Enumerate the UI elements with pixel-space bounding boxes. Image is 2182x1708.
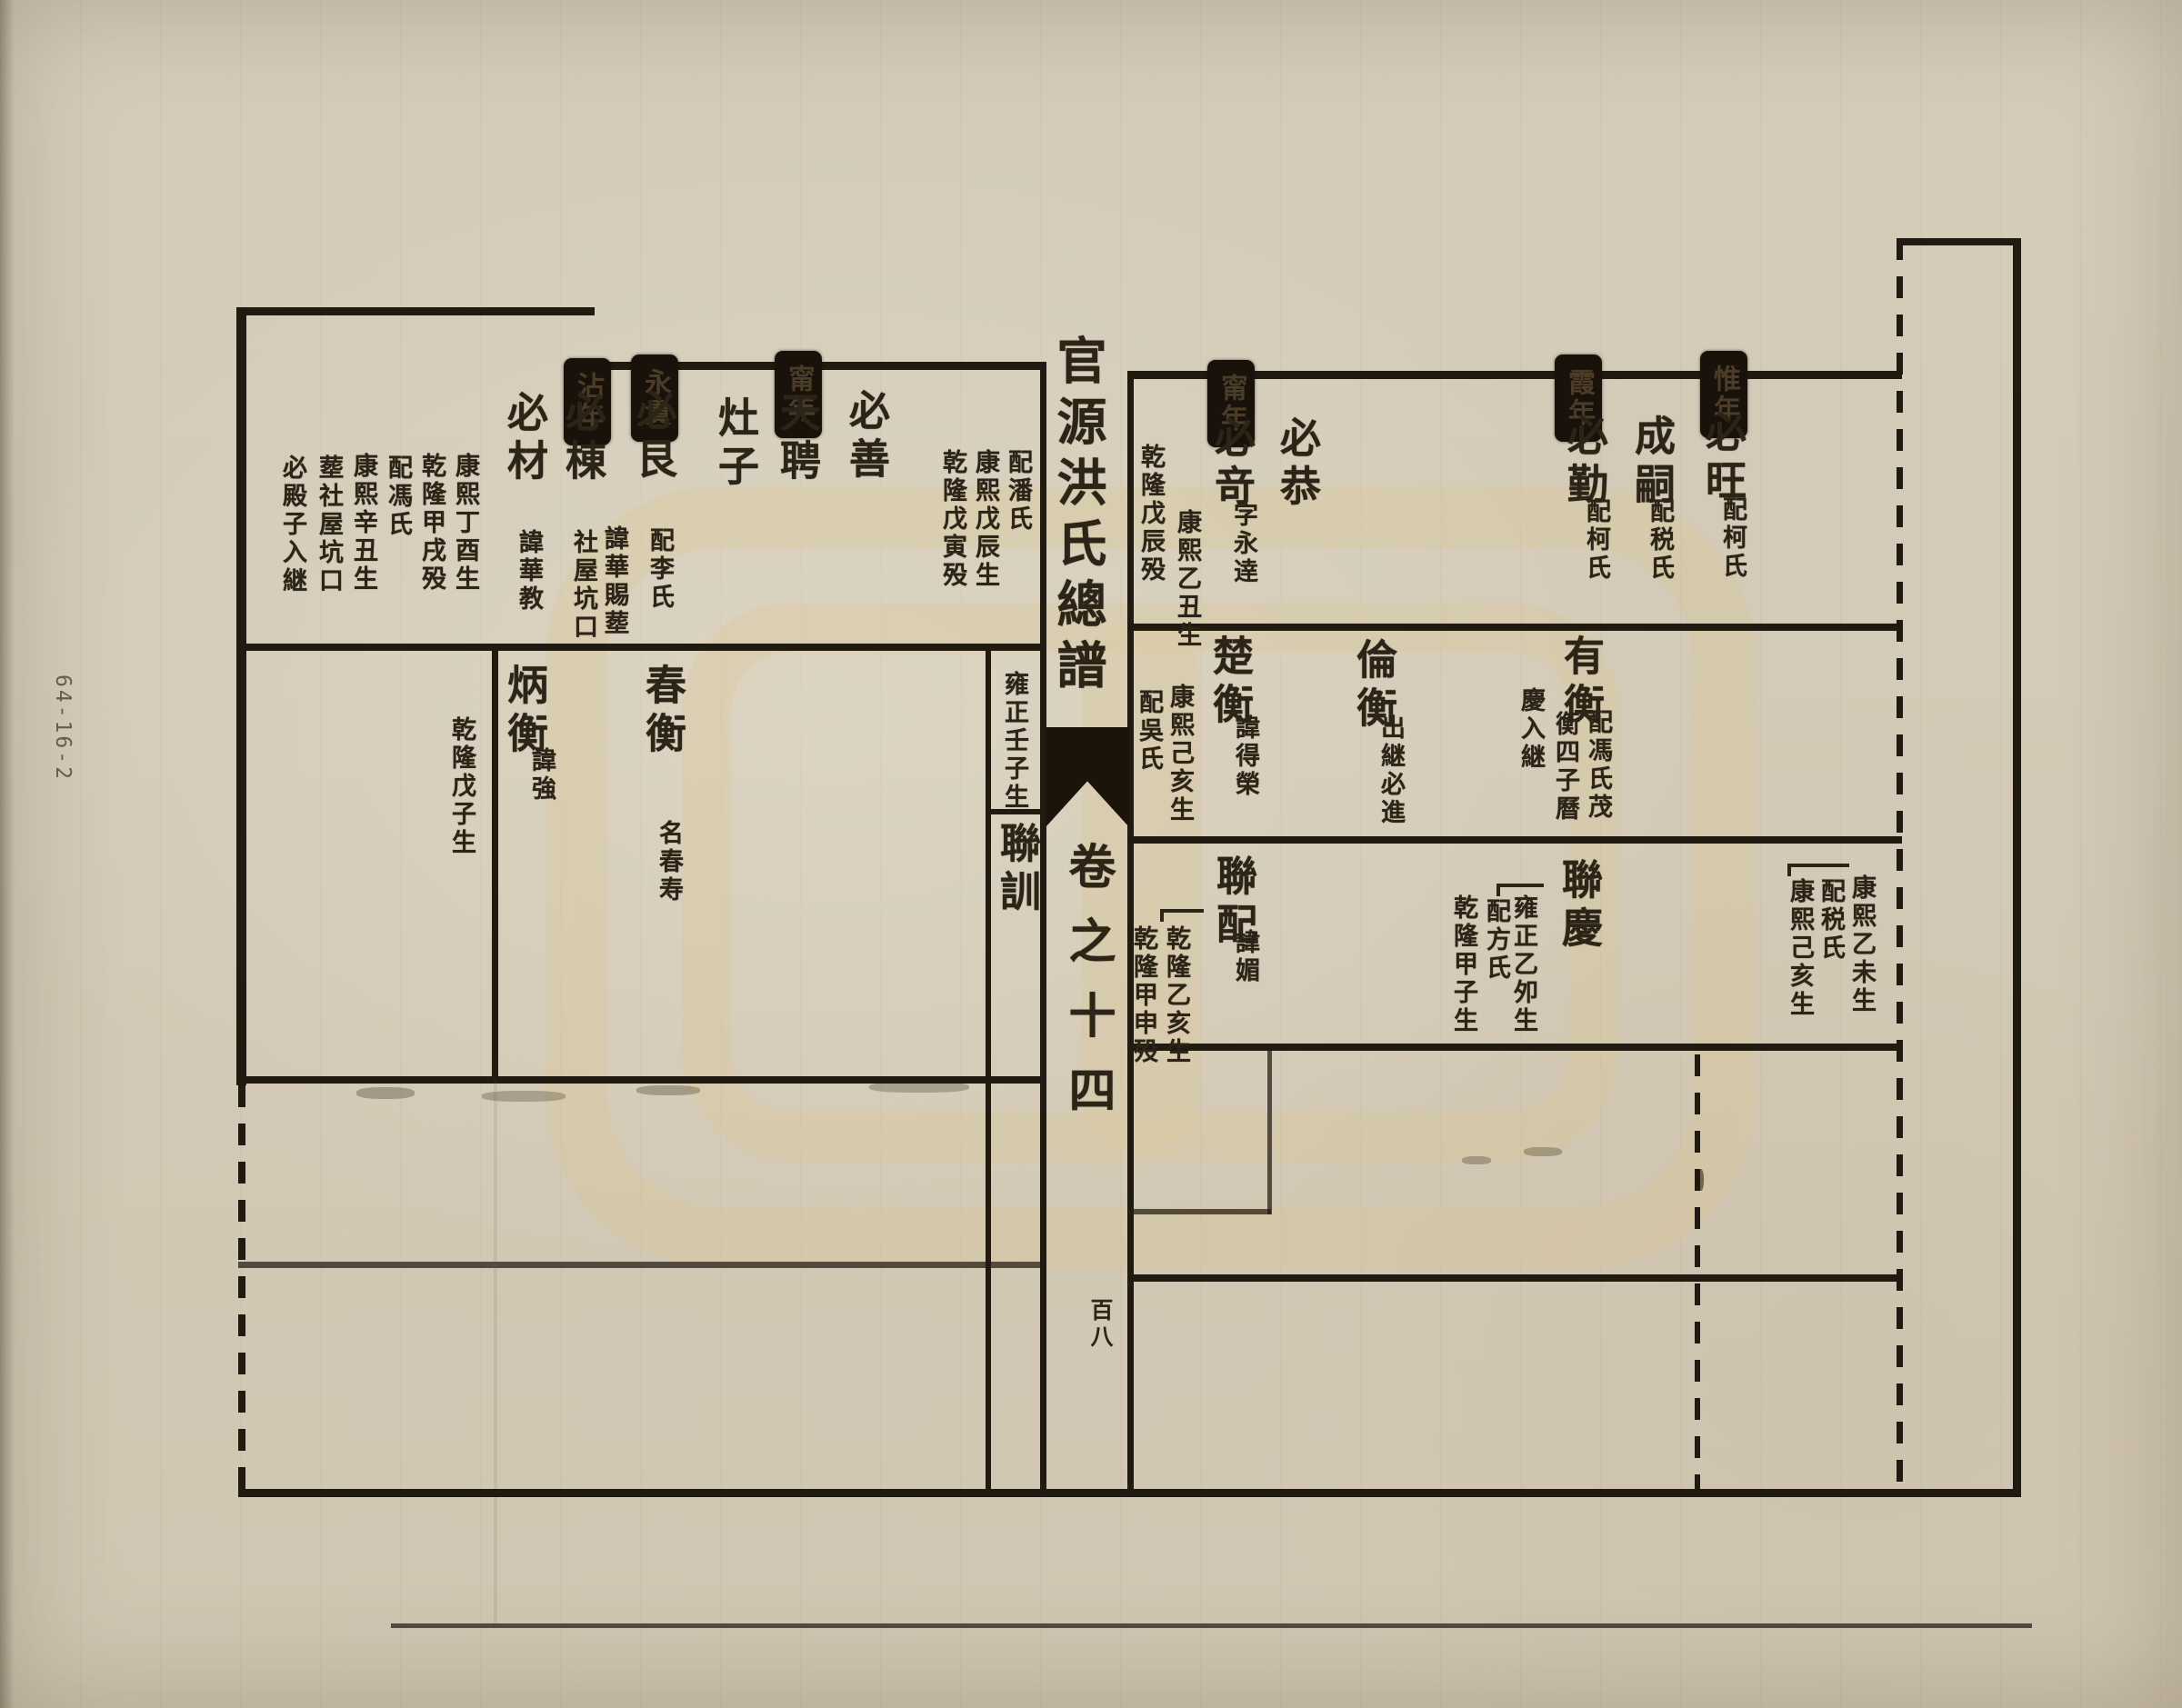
entry-detail: 必殿子入継 — [280, 454, 305, 595]
right-lower-vertical — [1695, 1054, 1700, 1493]
frame-line-left-top — [238, 307, 595, 315]
entry-detail: 乾隆戊寅殁 — [940, 449, 965, 590]
entry-detail: 出継必進 — [1378, 714, 1403, 827]
entry-detail: 乾隆戊子生 — [449, 716, 474, 857]
entry-detail: 配馮氏 — [385, 454, 410, 539]
right-row1-divider — [1127, 624, 1902, 631]
ink-speck — [356, 1087, 415, 1099]
left-inner-vertical — [492, 644, 498, 1080]
entry-detail: 康熙戊辰生 — [973, 449, 997, 590]
frame-line-left-border-lower — [238, 1085, 245, 1493]
ink-speck — [482, 1091, 566, 1102]
ink-speck — [869, 1082, 969, 1093]
entry-name-tianpin: 天聘 — [776, 391, 817, 487]
entry-detail: 諱華賜塟 — [602, 525, 626, 638]
entry-detail: 配潘氏 — [1006, 449, 1030, 534]
margin-label: 64-16-2 — [51, 674, 75, 782]
entry-detail: 慶入継 — [1518, 687, 1543, 772]
scanned-genealogy-page: 64-16-2 沾年 永貴 甯年 甯年 霞年 惟年 官源洪氏總譜 卷之十四 百八 — [0, 0, 2182, 1708]
frame-line-right-topcorner — [1897, 238, 2020, 245]
entry-detail: 諱得榮 — [1233, 714, 1257, 799]
entry-detail: 諱華教 — [516, 529, 541, 614]
volume-label: 卷之十四 — [1064, 842, 1111, 1140]
left-colA-vertical — [986, 644, 991, 1493]
entry-name-chunheng: 春衡 — [642, 664, 683, 760]
frame-line-left-border — [236, 307, 246, 1085]
entry-detail: 配税氏 — [1647, 498, 1672, 583]
entry-detail: 配方氏 — [1484, 898, 1508, 983]
left-row3-divider — [238, 1262, 1044, 1268]
scan-edge-shadow — [0, 0, 15, 1708]
entry-detail: 康熙丁酉生 — [453, 453, 477, 594]
entry-name-bidong: 必棟 — [562, 391, 603, 487]
entry-name-bingheng: 炳衡 — [504, 664, 545, 760]
entry-detail: 乾隆甲子生 — [1451, 894, 1476, 1035]
entry-detail: 諱強 — [529, 747, 554, 804]
right-margin-vertical — [1897, 238, 1903, 1496]
entry-name-biwang: 必旺 — [1702, 411, 1743, 507]
entry-detail: 配柯氏 — [1584, 498, 1608, 583]
entry-name-lianqing: 聯慶 — [1558, 858, 1599, 954]
entry-detail: 康熙己亥生 — [1787, 878, 1812, 1019]
fold-left-vertical — [1040, 362, 1046, 1496]
continuation-bracket — [1160, 909, 1204, 922]
entry-name-lianxun: 聯訓 — [996, 822, 1037, 918]
entry-detail: 康熙乙未生 — [1849, 874, 1874, 1015]
ink-speck — [636, 1085, 700, 1095]
entry-name-zaozi: 灶子 — [715, 396, 756, 493]
entry-name-bicai: 必材 — [504, 391, 545, 487]
right-row3-divider — [1127, 1044, 1902, 1051]
continuation-bracket — [1787, 864, 1849, 876]
entry-name-bigen: 必艮 — [633, 389, 674, 485]
left-row1-divider — [238, 644, 1044, 651]
entry-detail: 配吳氏 — [1136, 689, 1161, 774]
ink-speck — [1697, 1169, 1704, 1191]
entry-detail: 康熙辛丑生 — [351, 453, 375, 594]
entry-detail: 配馮氏茂 — [1586, 709, 1610, 822]
entry-name-biqi: 必竒 — [1211, 416, 1252, 513]
entry-name-bigong: 必恭 — [1276, 416, 1317, 513]
entry-detail: 名春寿 — [656, 820, 681, 904]
ink-speck — [1462, 1156, 1491, 1164]
entry-detail: 康熙己亥生 — [1167, 684, 1192, 824]
page-number-label: 百八 — [1089, 1298, 1112, 1351]
entry-detail: 配税氏 — [1818, 878, 1843, 963]
entry-detail: 康熙乙丑生 — [1175, 509, 1199, 650]
ink-speck — [1524, 1147, 1562, 1156]
entry-detail: 乾隆甲戌殁 — [419, 453, 444, 594]
entry-name-chengsi: 成嗣 — [1631, 415, 1672, 511]
entry-detail: 社屋坑口 — [571, 529, 596, 642]
frame-line-right-border — [2013, 238, 2021, 1496]
entry-name-biqin: 必勤 — [1564, 415, 1605, 511]
entry-detail: 雍正乙夘生 — [1511, 894, 1536, 1035]
fishtail-mark — [1046, 727, 1129, 827]
entry-detail: 諱媚 — [1233, 929, 1257, 985]
entry-detail: 塟社屋坑口 — [316, 454, 341, 595]
entry-name-bishan: 必善 — [846, 389, 886, 485]
right-cell-vertical — [1267, 1044, 1272, 1214]
paper-crease — [494, 1080, 497, 1625]
entry-detail: 配柯氏 — [1720, 496, 1745, 581]
entry-detail: 配李氏 — [647, 527, 672, 612]
entry-detail: 乾隆乙亥生 — [1164, 925, 1188, 1066]
entry-detail: 乾隆戊辰殁 — [1138, 444, 1163, 584]
outer-bottom-rule — [391, 1623, 2032, 1628]
entry-detail: 乾隆甲申殁 — [1131, 925, 1156, 1066]
right-row4-divider — [1127, 1274, 1902, 1282]
right-row2-divider — [1127, 836, 1902, 844]
frame-line-bottom — [238, 1489, 2021, 1497]
entry-detail: 衡四子曆 — [1553, 711, 1577, 824]
entry-detail: 字永逹 — [1231, 502, 1256, 586]
entry-detail: 雍正壬子生 — [1002, 671, 1026, 812]
right-short-divider — [1127, 1209, 1271, 1214]
fold-title: 官源洪氏總譜 — [1053, 335, 1103, 700]
